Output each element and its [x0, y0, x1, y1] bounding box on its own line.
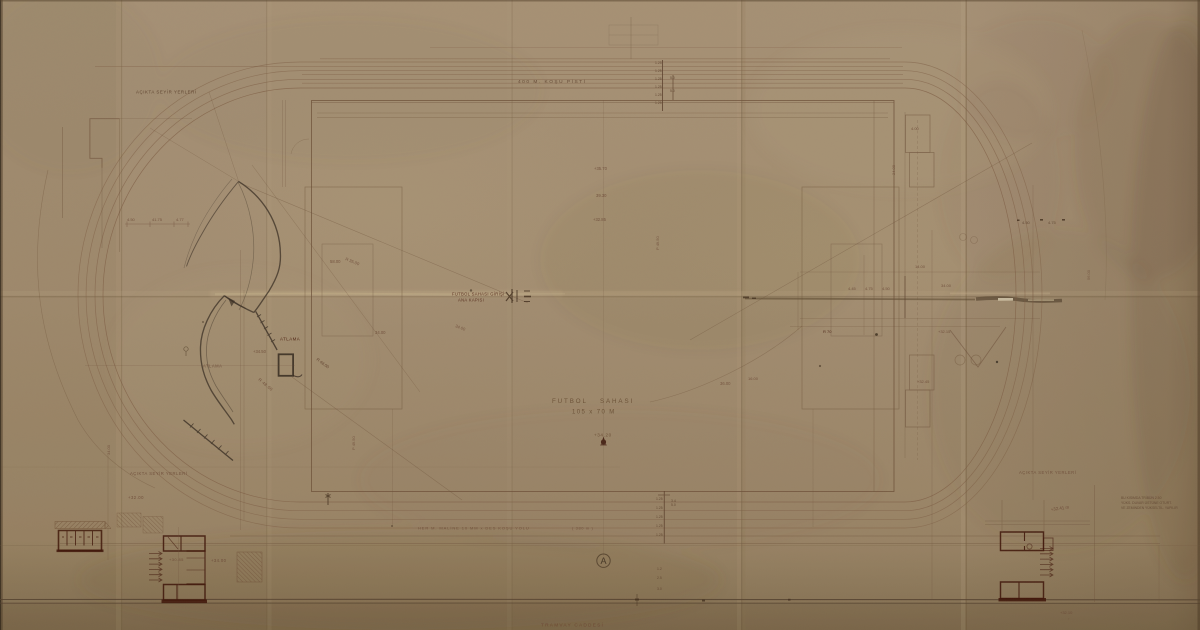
svg-text:4.75: 4.75 [1048, 220, 1057, 225]
svg-text:AÇIKTA SEYİR YERLERİ: AÇIKTA SEYİR YERLERİ [130, 471, 187, 476]
svg-text:FUTBOL: FUTBOL [552, 398, 588, 405]
svg-text:1.25: 1.25 [655, 61, 662, 65]
svg-text:4.50: 4.50 [127, 217, 136, 222]
svg-text:34.00: 34.00 [941, 283, 952, 288]
svg-text:AÇIKTA SEYİR YERLERİ: AÇIKTA SEYİR YERLERİ [1019, 470, 1076, 475]
svg-text:4.50: 4.50 [1022, 220, 1031, 225]
svg-text:P 49.50: P 49.50 [351, 436, 356, 450]
svg-text:1.25: 1.25 [655, 69, 662, 73]
svg-text:58.00: 58.00 [330, 259, 341, 264]
svg-text:+34.00: +34.00 [211, 558, 227, 563]
svg-text:+32.85: +32.85 [593, 217, 607, 222]
svg-text:34.00: 34.00 [106, 444, 111, 455]
svg-text:1.25: 1.25 [655, 85, 662, 89]
svg-text:+34.50: +34.50 [253, 349, 267, 354]
svg-text:+32.15: +32.15 [938, 329, 951, 334]
svg-text:SAHASI: SAHASI [600, 398, 634, 405]
svg-text:24.00: 24.00 [891, 164, 896, 175]
svg-text:ANA KAPISI: ANA KAPISI [458, 298, 484, 303]
svg-text:HER M. MALİNE 10 MM x DES KOŞU: HER M. MALİNE 10 MM x DES KOŞU YOLU [418, 526, 530, 531]
svg-text:36.00: 36.00 [720, 381, 731, 386]
svg-text:34.00: 34.00 [375, 330, 386, 335]
svg-text:400 M. KOŞU PİSTİ: 400 M. KOŞU PİSTİ [518, 78, 586, 85]
svg-text:4.75: 4.75 [865, 286, 874, 291]
svg-text:1.2: 1.2 [657, 567, 662, 571]
svg-text:R 70: R 70 [823, 329, 832, 334]
svg-text:1.25: 1.25 [655, 77, 662, 81]
svg-text:4.00: 4.00 [911, 126, 920, 131]
svg-text:5.0: 5.0 [670, 89, 675, 93]
svg-text:↑: ↑ [1068, 617, 1070, 621]
svg-text:+32.00: +32.00 [128, 495, 144, 500]
svg-text:+32.45: +32.45 [917, 379, 930, 384]
svg-text:105 x 70 M: 105 x 70 M [572, 410, 616, 416]
svg-text:14.00: 14.00 [915, 264, 926, 269]
svg-text:2.5: 2.5 [657, 576, 662, 580]
svg-text:BU KISIMDA TRİBÜN 2.50: BU KISIMDA TRİBÜN 2.50 [1121, 495, 1162, 500]
svg-text:3.0: 3.0 [657, 587, 662, 591]
svg-text:P 49.50: P 49.50 [655, 236, 660, 250]
svg-text:1.25: 1.25 [655, 93, 662, 97]
svg-text:56.00: 56.00 [1086, 269, 1091, 280]
svg-text:ATLAMA: ATLAMA [203, 364, 222, 369]
svg-text:1.25: 1.25 [656, 515, 663, 519]
svg-text:+30.85: +30.85 [169, 557, 184, 562]
svg-text:1.25: 1.25 [656, 497, 663, 501]
svg-text:( 380 m ): ( 380 m ) [572, 526, 593, 531]
svg-text:1.25: 1.25 [656, 524, 663, 528]
svg-text:YÜKS. DUVAR ÜSTÜNE OTURT.: YÜKS. DUVAR ÜSTÜNE OTURT. [1121, 501, 1172, 505]
svg-text:A: A [600, 556, 606, 566]
svg-text:5.0: 5.0 [671, 503, 676, 507]
svg-text:4.77: 4.77 [176, 217, 185, 222]
svg-text:39.30: 39.30 [596, 193, 607, 198]
svg-text:1.25: 1.25 [656, 506, 663, 510]
svg-text:VE ZEMİNDEN YÜKSELTİL. YAPILIR: VE ZEMİNDEN YÜKSELTİL. YAPILIR [1121, 505, 1178, 510]
svg-text:1.25: 1.25 [656, 533, 663, 537]
svg-text:16.00: 16.00 [748, 376, 759, 381]
svg-text:+35.70: +35.70 [594, 166, 608, 171]
svg-text:+34.20: +34.20 [594, 433, 612, 438]
svg-text:ATLAMA: ATLAMA [280, 337, 300, 342]
svg-text:FUTBOL SAHASI GİRİŞİ: FUTBOL SAHASI GİRİŞİ [452, 292, 505, 297]
svg-text:AÇIKTA SEYİR YERLERİ: AÇIKTA SEYİR YERLERİ [136, 90, 197, 95]
svg-text:4.45: 4.45 [848, 286, 857, 291]
svg-text:+32.10: +32.10 [1060, 610, 1073, 615]
svg-text:41.75: 41.75 [152, 217, 163, 222]
svg-text:4.50: 4.50 [882, 286, 891, 291]
svg-text:TRAMVAY CADDESİ: TRAMVAY CADDESİ [541, 622, 604, 629]
svg-text:5.0: 5.0 [670, 76, 675, 80]
svg-text:1.25: 1.25 [655, 101, 662, 105]
